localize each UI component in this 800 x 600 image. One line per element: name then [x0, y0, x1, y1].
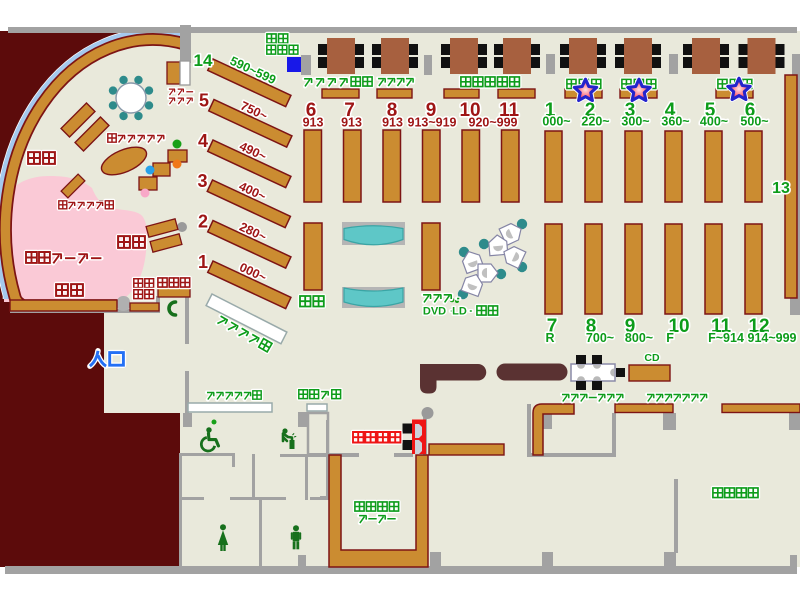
svg-text:3: 3 — [197, 171, 207, 191]
svg-text:800~: 800~ — [625, 331, 653, 345]
svg-text:700~: 700~ — [586, 331, 614, 345]
svg-text:F: F — [666, 331, 674, 345]
svg-text:913: 913 — [341, 116, 362, 130]
svg-text:5: 5 — [199, 91, 209, 111]
svg-text:11: 11 — [499, 100, 520, 121]
svg-text:400~: 400~ — [700, 115, 728, 129]
svg-text:F~914: F~914 — [708, 331, 744, 345]
svg-text:913~919: 913~919 — [407, 116, 456, 130]
svg-text:500~: 500~ — [740, 115, 768, 129]
svg-text:913: 913 — [303, 116, 324, 130]
svg-text:4: 4 — [198, 131, 208, 151]
svg-text:360~: 360~ — [661, 115, 689, 129]
svg-text:14: 14 — [194, 51, 213, 70]
svg-text:300~: 300~ — [621, 115, 649, 129]
svg-text:000~: 000~ — [542, 115, 570, 129]
svg-text:1: 1 — [198, 252, 208, 272]
svg-text:220~: 220~ — [581, 115, 609, 129]
svg-text:R: R — [545, 331, 554, 345]
svg-text:CD: CD — [644, 352, 660, 364]
svg-text:2: 2 — [198, 212, 208, 232]
svg-text:LD: LD — [452, 306, 467, 318]
svg-text:13: 13 — [772, 180, 790, 197]
svg-text:913: 913 — [382, 116, 403, 130]
svg-text:DVD: DVD — [423, 306, 446, 318]
svg-text:914~999: 914~999 — [747, 331, 796, 345]
